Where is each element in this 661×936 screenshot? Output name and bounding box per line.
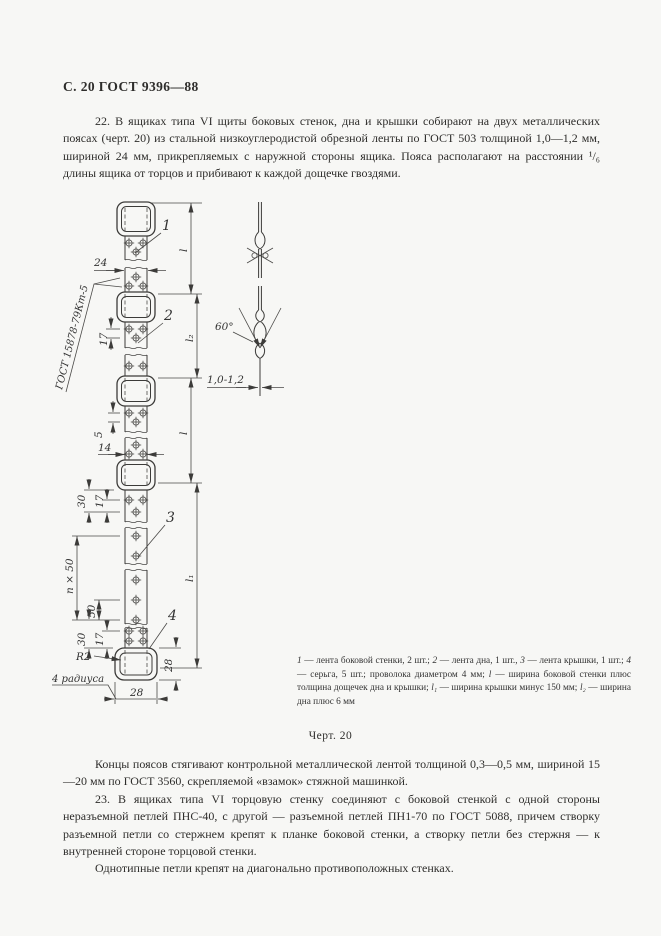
dim-17-upper: 17 [98,332,110,346]
dim-28-height: 28 [163,658,175,673]
dim-l1: l₁ [184,574,196,582]
dim-17-mid: 17 [94,494,106,508]
strap-chain [115,202,157,680]
part-label-1: 1 [162,218,171,234]
lower-text-block: Концы поясов стягивают контрольной метал… [63,756,600,878]
page-header: С. 20 ГОСТ 9396—88 [63,79,199,95]
paragraph-22-block: 22. В ящиках типа VI щиты боковых стенок… [63,113,600,183]
dimensions-left: 24 17 5 14 [51,257,166,699]
dim-l2: l₂ [184,334,196,342]
weld-note-text: ГОСТ 15878-79Кт-5 [54,284,91,392]
part-callouts: 1 2 3 4 [135,218,177,649]
dim-5: 5 [93,431,105,438]
paragraph-ends: Концы поясов стягивают контрольной метал… [63,756,600,791]
dim-24: 24 [93,257,107,269]
buckle-5 [115,648,157,680]
dim-30-lower: 30 [76,632,88,646]
part-label-2: 2 [163,308,173,324]
dim-50: 50 [86,604,98,618]
paragraph-23: 23. В ящиках типа VI торцовую стенку сое… [63,791,600,861]
paragraph-hinges: Однотипные петли крепят на диагонально п… [63,860,600,877]
part-label-3: 3 [166,510,175,526]
dim-30-upper: 30 [76,494,88,508]
nail-holes [124,238,148,646]
figure-caption: Черт. 20 [0,730,661,742]
dim-r2: R2 [75,651,91,663]
detail-view: 60° 1,0-1,2 [207,202,284,396]
dim-thickness: 1,0-1,2 [207,374,244,386]
document-page: С. 20 ГОСТ 9396—88 22. В ящиках типа VI … [0,0,661,936]
buckle-1 [117,202,155,236]
dim-17-lower: 17 [94,632,106,646]
dim-28-width: 28 [129,687,144,699]
dim-l-top: l [178,249,190,252]
dimensions-right: l l₂ l l₁ [150,203,202,668]
paragraph-22: 22. В ящиках типа VI щиты боковых стенок… [63,113,600,183]
buckle-2 [117,292,155,322]
dim-l-mid: l [178,432,190,435]
dim-14: 14 [98,442,111,454]
dim-radius-note: 4 радиуса [51,674,104,685]
buckle-4 [117,460,155,490]
part-label-4: 4 [167,608,177,624]
buckle-3 [117,376,155,406]
figure-legend: 1 — лента боковой стенки, 2 шт.; 2 — лен… [297,655,631,709]
dim-n50: n × 50 [64,558,76,594]
weld-designation: ГОСТ 15878-79Кт-5 [54,278,122,392]
dim-60deg: 60° [215,321,234,333]
